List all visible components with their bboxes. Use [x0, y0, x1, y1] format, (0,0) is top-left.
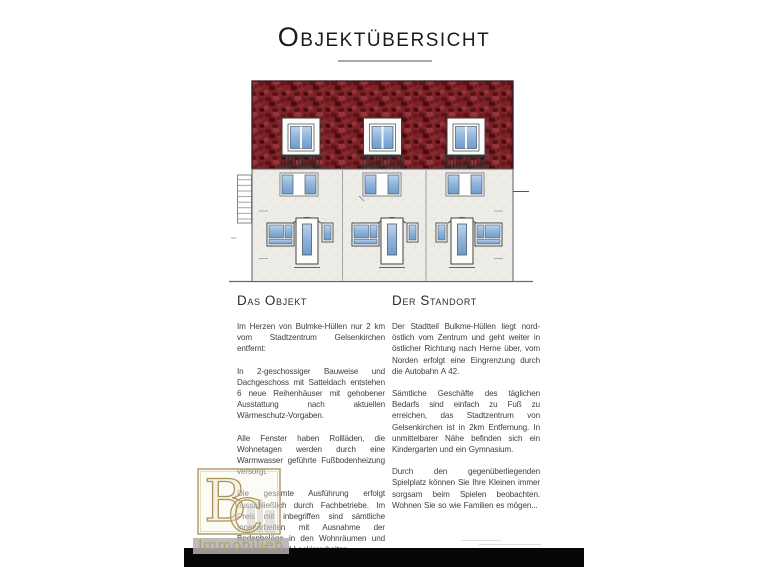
document-page: Objektübersicht: [0, 0, 768, 567]
column-der-standort: Der Standort Der Stadtteil Bulkme-Hüllen…: [392, 293, 540, 522]
watermark-label: Immobilien: [198, 539, 284, 553]
section-heading-standort: Der Standort: [392, 293, 540, 308]
paragraph: Durch den gegenüberliegenden Spielplatz …: [392, 466, 540, 511]
paragraph: Im Herzen von Bulmke-Hüllen nur 2 km vom…: [237, 321, 385, 355]
monogram-letter-c: C: [228, 489, 263, 536]
section-heading-objekt: Das Objekt: [237, 293, 385, 308]
agency-watermark-logo: B C Immobilien: [193, 468, 293, 554]
dormer-windows: [279, 118, 488, 168]
left-annex: [231, 175, 252, 238]
ground-floor-units: [267, 218, 502, 268]
title-divider: [338, 60, 432, 62]
faint-scan-marks: [455, 537, 550, 547]
paragraph: In 2-geschossiger Bauweise und Dachgesch…: [237, 366, 385, 422]
watermark-label-bar: Immobilien: [193, 538, 289, 554]
page-title: Objektübersicht: [0, 22, 768, 53]
paragraph: Sämtliche Geschäfte des täglichen Bedarf…: [392, 388, 540, 455]
monogram-icon: B C: [197, 468, 281, 536]
building-elevation-drawing: [225, 75, 540, 287]
upper-floor-windows: [280, 173, 484, 196]
paragraph: Der Stadtteil Bulkme-Hüllen liegt nord-ö…: [392, 321, 540, 377]
